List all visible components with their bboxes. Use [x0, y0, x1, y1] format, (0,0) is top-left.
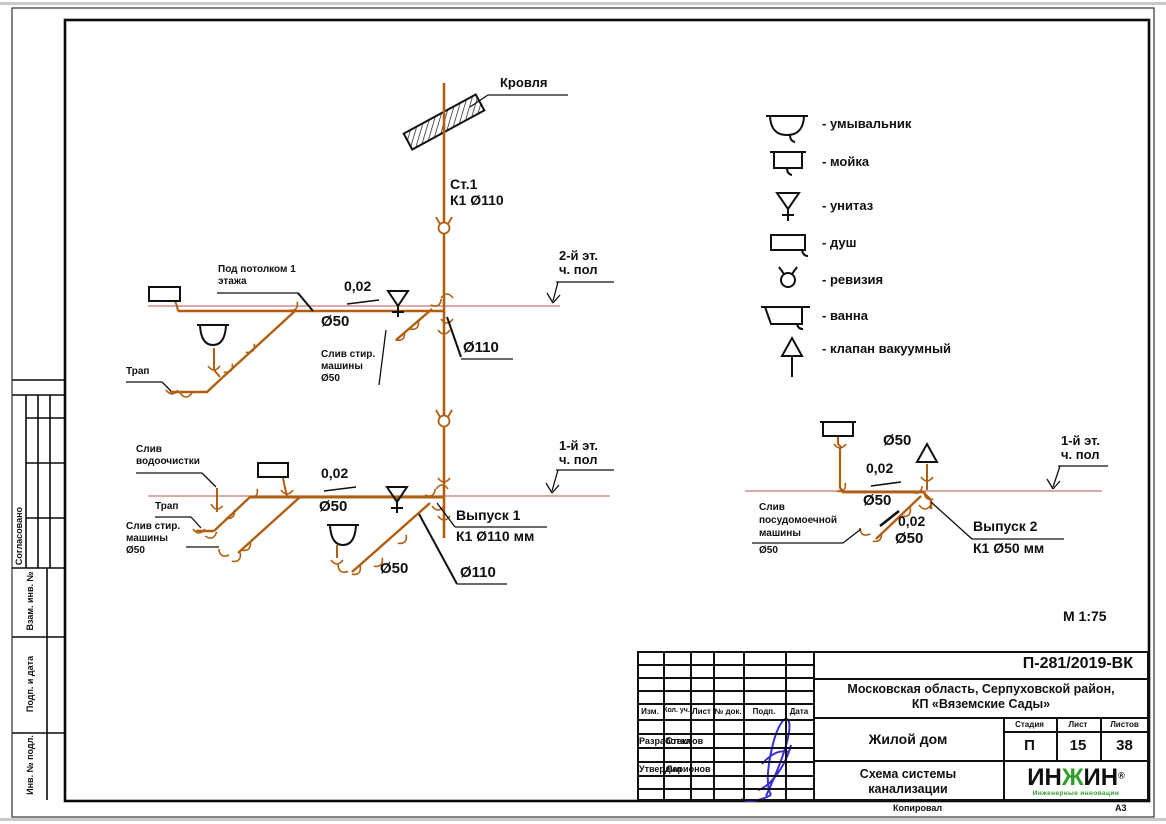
d110-label-1f: Ø110 — [460, 565, 496, 581]
floor2-label-2: ч. пол — [559, 263, 598, 277]
tb-col-data: Дата — [785, 707, 813, 716]
water-treatment-label-1: Слив — [136, 445, 162, 456]
sewer-pipes — [170, 83, 931, 572]
slope-label-1f: 0,02 — [321, 466, 348, 481]
under-ceiling-label-2: этажа — [218, 277, 247, 288]
washer-drain-1f-3: Ø50 — [126, 546, 145, 557]
toilet-icon — [777, 193, 799, 221]
tb-stage-value: П — [1003, 737, 1056, 754]
company-logo: ИНЖИН® Инженерные инновации — [1003, 764, 1149, 797]
legend-label-bath: - ванна — [822, 309, 868, 323]
tb-col-podp: Подп. — [743, 707, 785, 716]
d50-label-kitchen-low: Ø50 — [895, 531, 923, 547]
tb-location-2: КП «Вяземские Сады» — [813, 697, 1149, 711]
revision-icon — [779, 267, 797, 287]
slope-label-2f: 0,02 — [344, 279, 371, 294]
floor1-right-label-2: ч. пол — [1061, 448, 1100, 462]
d50-label-1f-b: Ø50 — [380, 561, 408, 577]
outlet1-label-2: К1 Ø110 мм — [456, 529, 534, 544]
tb-object-name: Жилой дом — [813, 731, 1003, 747]
logo-text-2: ИН — [1084, 764, 1119, 791]
under-ceiling-label-1: Под потолком 1 — [218, 265, 296, 276]
dishwasher-label-1: Слив — [759, 503, 785, 514]
legend-symbols — [761, 116, 810, 377]
floor1-right-label-1: 1-й эт. — [1061, 434, 1100, 448]
tb-title-2: канализации — [813, 782, 1003, 796]
d110-label-2f: Ø110 — [463, 340, 499, 356]
toilet-2f — [388, 291, 408, 317]
legend-label-toilet: - унитаз — [822, 199, 873, 213]
stamp-soglasovano-label: Согласовано — [14, 481, 24, 591]
logo-text-green: Ж — [1062, 764, 1084, 791]
shower-1f — [258, 463, 288, 477]
washer-drain-1f-2: машины — [126, 534, 168, 545]
logo-subtitle: Инженерные инновации — [1003, 790, 1149, 797]
tb-doc-number: П-281/2019-ВК — [813, 655, 1133, 673]
title-block: Изм. Кол. уч. Лист № док. Подп. Дата Раз… — [637, 651, 1149, 801]
washer-drain-2f-3: Ø50 — [321, 374, 340, 385]
tb-sheet-header: Лист — [1056, 720, 1100, 729]
slope-label-kitchen-2: 0,02 — [898, 514, 925, 529]
washer-drain-2f-2: машины — [321, 362, 363, 373]
stamp-podp-data-label: Подп. и дата — [25, 639, 35, 729]
d50-label-kitchen-mid: Ø50 — [863, 493, 891, 509]
tb-title-1: Схема системы — [813, 767, 1003, 781]
tb-developer-name: Стеклов — [666, 736, 703, 746]
washbasin-1f — [327, 525, 359, 545]
washer-drain-2f-1: Слив стир. — [321, 350, 375, 361]
outlet2-label-1: Выпуск 2 — [973, 519, 1037, 534]
dishwasher-label-2: посудомоечной — [759, 516, 837, 527]
dishwasher-label-4: Ø50 — [759, 546, 778, 557]
d50-label-kitchen-top: Ø50 — [883, 433, 911, 449]
format-label: А3 — [1115, 804, 1127, 813]
stack-label-1: Ст.1 — [450, 177, 477, 192]
scale-label: М 1:75 — [1063, 609, 1107, 624]
copied-by-label: Копировал — [893, 804, 942, 813]
tb-col-izm: Изм. — [637, 707, 663, 716]
water-treatment-label-2: водоочистки — [136, 457, 200, 468]
leaders — [126, 95, 1108, 584]
legend-label-revision: - ревизия — [822, 273, 883, 287]
floor2-marker-arrow — [547, 282, 614, 303]
stack-label-2: К1 Ø110 — [450, 193, 504, 208]
shower-icon — [771, 235, 808, 256]
tb-approver-name: Ларионов — [666, 764, 711, 774]
tb-sheets-header: Листов — [1100, 720, 1149, 729]
tb-stage-header: Стадия — [1003, 720, 1056, 729]
tb-col-list: Лист — [690, 707, 713, 716]
tb-sheet-value: 15 — [1056, 737, 1100, 754]
vacuum-valve — [917, 444, 937, 462]
roof-label: Кровля — [500, 76, 547, 90]
legend-label-vacuum-valve: - клапан вакуумный — [822, 342, 951, 356]
sink-icon — [770, 152, 806, 175]
washbasin-2f — [197, 325, 229, 345]
outlet2-label-2: К1 Ø50 мм — [973, 541, 1044, 556]
tb-sheets-value: 38 — [1100, 737, 1149, 754]
trap-label-1f: Трап — [155, 502, 178, 513]
floor1-right-marker-arrow — [1047, 466, 1108, 489]
d50-label-1f-a: Ø50 — [319, 499, 347, 515]
floor2-label-1: 2-й эт. — [559, 249, 598, 263]
drawing-sheet: Кровля Ст.1 К1 Ø110 2-й эт. ч. пол Под п… — [0, 0, 1166, 824]
floor1-marker-arrow — [546, 470, 614, 493]
washbasin-icon — [766, 116, 808, 142]
logo-text-1: ИН — [1027, 764, 1062, 791]
dishwasher-label-3: машины — [759, 529, 801, 540]
stamp-vzam-label: Взам. инв. № — [25, 566, 35, 636]
floor1-label-1: 1-й эт. — [559, 439, 598, 453]
floor1-label-2: ч. пол — [559, 453, 598, 467]
vacuum-valve-icon — [782, 338, 802, 377]
bath-icon — [761, 307, 810, 329]
floor-lines — [148, 306, 1102, 496]
tb-col-ndok: № док. — [713, 707, 743, 716]
shower-2f — [149, 287, 180, 301]
tb-col-kol: Кол. уч. — [663, 707, 690, 714]
logo-registered-mark: ® — [1118, 771, 1125, 781]
washer-drain-1f-1: Слив стир. — [126, 522, 180, 533]
kitchen-sink — [820, 422, 856, 436]
fixtures — [149, 287, 937, 545]
tb-location-1: Московская область, Серпуховской район, — [813, 682, 1149, 696]
legend-label-washbasin: - умывальник — [822, 117, 911, 131]
outlet1-label-1: Выпуск 1 — [456, 508, 520, 523]
trap-label-2f: Трап — [126, 367, 149, 378]
legend-label-sink: - мойка — [822, 155, 869, 169]
stamp-inv-podl-label: Инв. № подл. — [25, 733, 35, 797]
pipe-socket-arcs — [166, 294, 933, 577]
d50-label-2f: Ø50 — [321, 314, 349, 330]
slope-label-kitchen-1: 0,02 — [866, 461, 893, 476]
legend-label-shower: - душ — [822, 236, 856, 250]
